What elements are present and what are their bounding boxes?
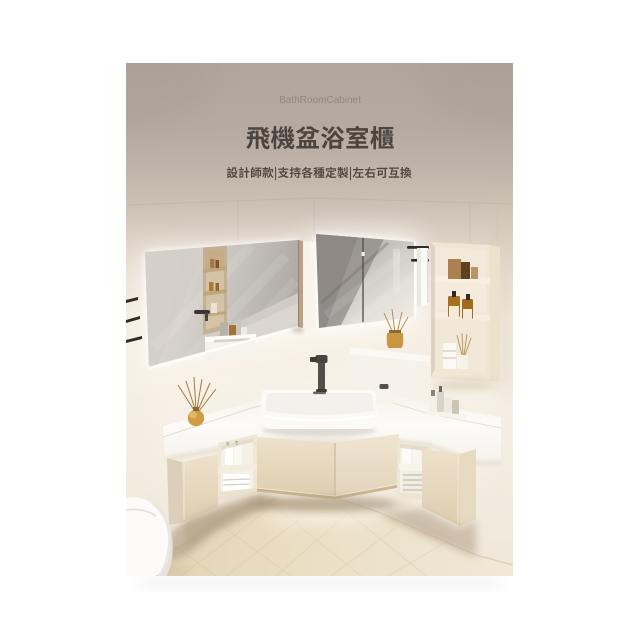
svg-text:BathRoomCabinet: BathRoomCabinet bbox=[279, 95, 361, 106]
